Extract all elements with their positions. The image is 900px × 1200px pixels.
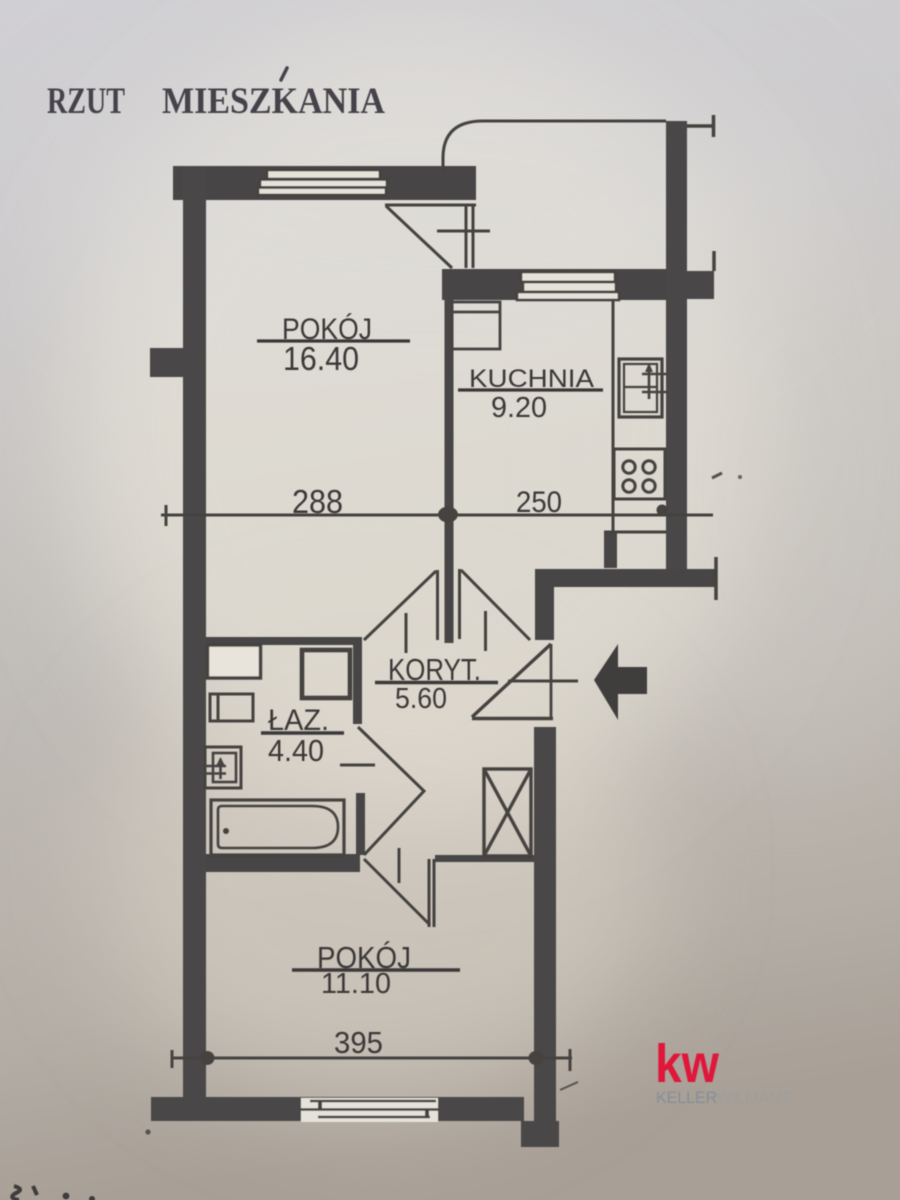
svg-text:288: 288 xyxy=(292,483,343,520)
svg-text:9.20: 9.20 xyxy=(491,392,547,424)
svg-text:KELLERWILLIAMS: KELLERWILLIAMS xyxy=(656,1088,793,1107)
svg-text:250: 250 xyxy=(516,486,562,519)
svg-text:5.60: 5.60 xyxy=(395,683,447,715)
svg-text:RZUT: RZUT xyxy=(47,81,125,122)
svg-text:MIESZKANIA: MIESZKANIA xyxy=(162,81,385,122)
svg-text:kw: kw xyxy=(655,1034,720,1094)
svg-text:16.40: 16.40 xyxy=(283,340,359,377)
svg-text:11.10: 11.10 xyxy=(321,968,391,1000)
svg-text:395: 395 xyxy=(334,1025,383,1060)
svg-text:4.40: 4.40 xyxy=(268,733,324,768)
